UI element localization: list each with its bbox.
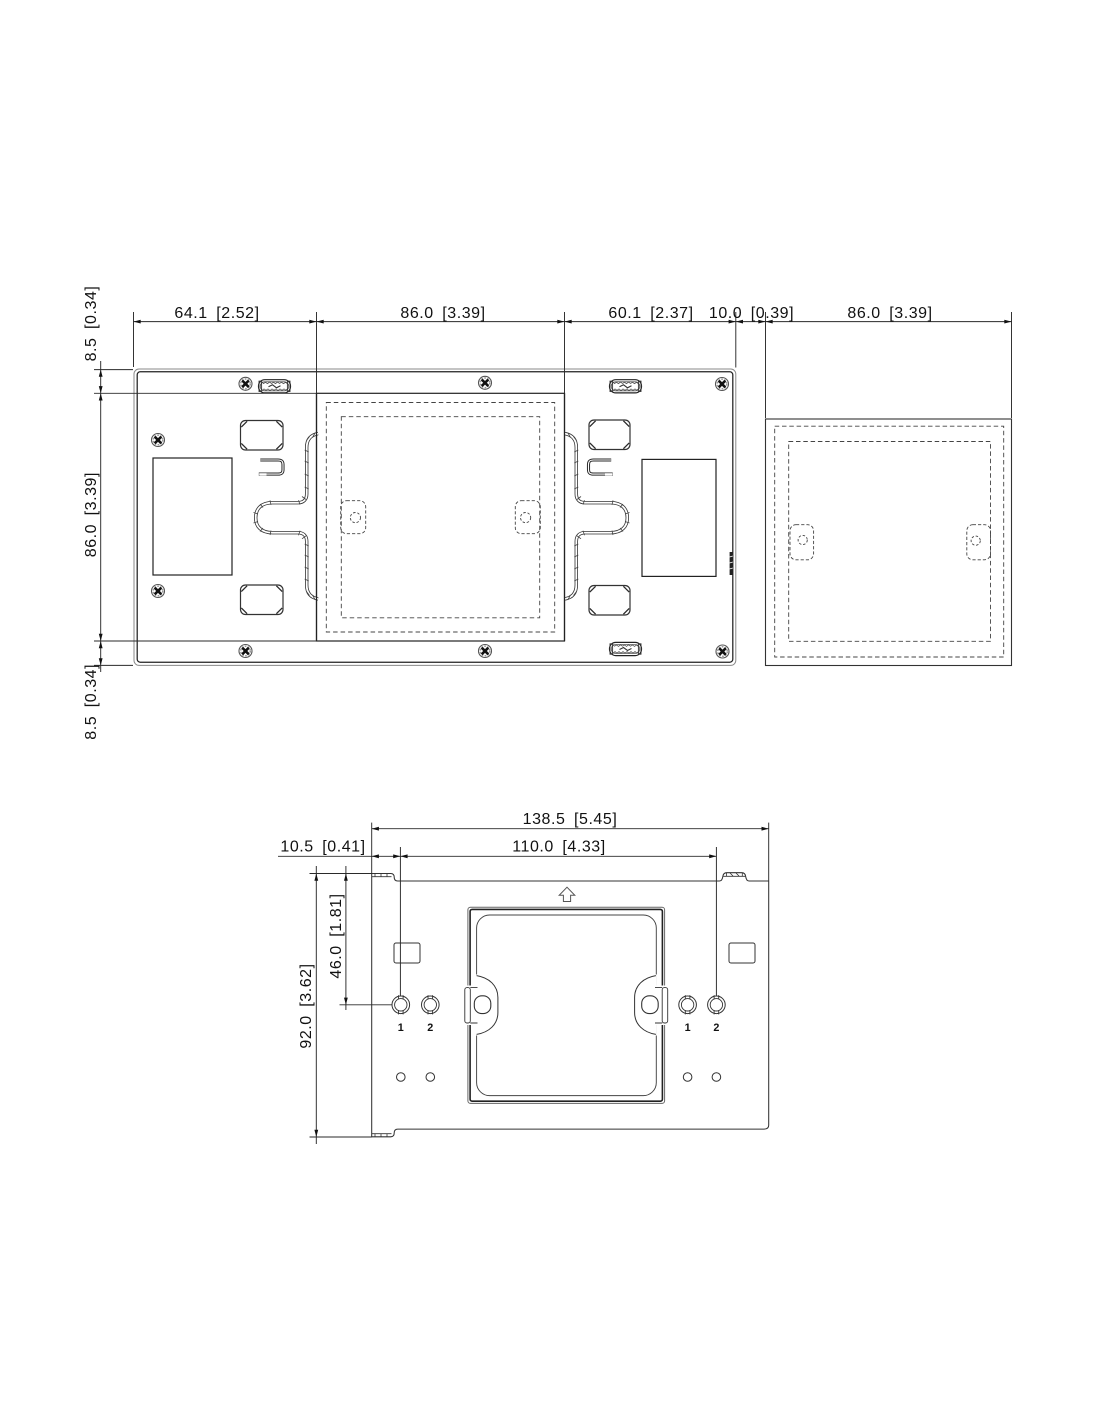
svg-text:8.5 [0.34]: 8.5 [0.34]: [83, 664, 100, 740]
svg-text:2: 2: [713, 1022, 719, 1034]
svg-text:110.0 [4.33]: 110.0 [4.33]: [512, 839, 605, 856]
svg-text:46.0 [1.81]: 46.0 [1.81]: [328, 893, 345, 978]
svg-text:10.5 [0.41]: 10.5 [0.41]: [280, 839, 365, 856]
svg-text:138.5 [5.45]: 138.5 [5.45]: [523, 811, 618, 828]
svg-text:10.0 [0.39]: 10.0 [0.39]: [709, 305, 794, 322]
svg-text:86.0 [3.39]: 86.0 [3.39]: [400, 305, 485, 322]
svg-text:1: 1: [398, 1022, 404, 1034]
svg-text:8.5 [0.34]: 8.5 [0.34]: [83, 286, 100, 362]
svg-text:92.0 [3.62]: 92.0 [3.62]: [298, 963, 315, 1048]
svg-text:86.0 [3.39]: 86.0 [3.39]: [847, 305, 932, 322]
svg-text:2: 2: [427, 1022, 433, 1034]
svg-text:1: 1: [685, 1022, 691, 1034]
svg-text:60.1 [2.37]: 60.1 [2.37]: [608, 305, 693, 322]
svg-text:64.1 [2.52]: 64.1 [2.52]: [174, 305, 259, 322]
svg-text:86.0 [3.39]: 86.0 [3.39]: [83, 472, 100, 557]
